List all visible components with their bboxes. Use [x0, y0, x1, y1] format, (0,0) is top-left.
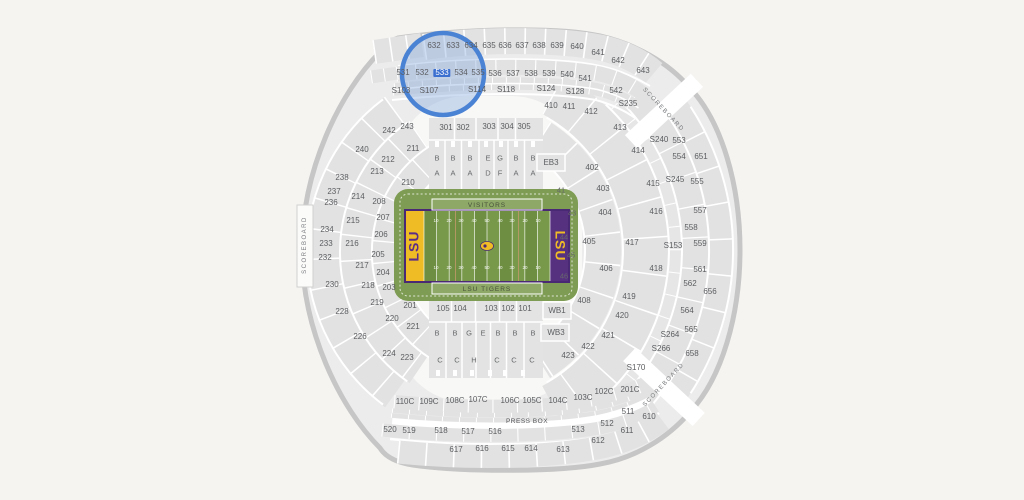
map-label-f: F: [498, 169, 503, 177]
map-label-640[interactable]: 640: [570, 43, 583, 51]
map-label-637[interactable]: 637: [515, 42, 528, 50]
map-label-555[interactable]: 555: [690, 178, 703, 186]
map-label-20: 20: [446, 266, 451, 271]
map-label-564[interactable]: 564: [680, 307, 693, 315]
map-label-408[interactable]: 408: [577, 297, 590, 305]
map-label-eb3[interactable]: EB3: [543, 159, 558, 167]
map-label-s264[interactable]: S264: [661, 331, 680, 339]
map-label-406[interactable]: 406: [599, 265, 612, 273]
map-label-538[interactable]: 538: [524, 70, 537, 78]
map-label-a: A: [434, 169, 439, 177]
map-label-s118[interactable]: S118: [497, 86, 515, 94]
map-label-217[interactable]: 217: [355, 262, 368, 270]
map-label-104[interactable]: 104: [453, 305, 466, 313]
map-label-228[interactable]: 228: [335, 308, 348, 316]
map-label-518[interactable]: 518: [434, 427, 447, 435]
map-label-50: 50: [484, 219, 489, 224]
map-label-205[interactable]: 205: [371, 251, 384, 259]
map-label-b: B: [513, 154, 518, 162]
map-label-226[interactable]: 226: [353, 333, 366, 341]
map-label-104c[interactable]: 104C: [548, 397, 567, 405]
map-label-b: B: [495, 329, 500, 337]
map-label-220[interactable]: 220: [385, 315, 398, 323]
map-label-204[interactable]: 204: [376, 269, 389, 277]
map-label-wb1[interactable]: WB1: [548, 307, 565, 315]
map-label-201c[interactable]: 201C: [620, 386, 639, 394]
map-label-40: 40: [471, 219, 476, 224]
map-label-218[interactable]: 218: [361, 282, 374, 290]
map-label-103c[interactable]: 103C: [573, 394, 592, 402]
map-label-s124[interactable]: S124: [537, 85, 556, 93]
map-label-208[interactable]: 208: [372, 198, 385, 206]
map-label-511[interactable]: 511: [622, 408, 635, 416]
map-label-g: G: [497, 154, 503, 162]
map-label-656[interactable]: 656: [703, 288, 716, 296]
map-label-20: 20: [522, 219, 527, 224]
map-label-206[interactable]: 206: [374, 231, 387, 239]
map-label-532[interactable]: 532: [415, 69, 428, 77]
map-label-554[interactable]: 554: [672, 153, 685, 161]
map-label-632[interactable]: 632: [427, 42, 440, 50]
map-label-520[interactable]: 520: [383, 426, 396, 434]
map-label-616[interactable]: 616: [475, 445, 488, 453]
map-label-531[interactable]: 531: [396, 69, 409, 77]
map-label-305[interactable]: 305: [517, 123, 530, 131]
map-label-102[interactable]: 102: [501, 305, 514, 313]
map-label-30: 30: [509, 219, 514, 224]
map-label-211[interactable]: 211: [407, 145, 420, 153]
map-label-404[interactable]: 404: [598, 209, 611, 217]
map-label-242[interactable]: 242: [382, 127, 395, 135]
map-label-s128[interactable]: S128: [566, 88, 585, 96]
map-label-651[interactable]: 651: [694, 153, 707, 161]
map-label-418[interactable]: 418: [649, 265, 662, 273]
map-label-541[interactable]: 541: [578, 75, 591, 83]
map-label-108c[interactable]: 108C: [445, 397, 464, 405]
map-label-636[interactable]: 636: [498, 42, 511, 50]
map-label-c: C: [494, 356, 499, 364]
map-label-210[interactable]: 210: [401, 179, 414, 187]
map-label-611[interactable]: 611: [621, 427, 634, 435]
map-label-46: 46: [560, 272, 568, 280]
map-label-a: A: [530, 169, 535, 177]
map-label-105[interactable]: 105: [436, 305, 449, 313]
map-label-658[interactable]: 658: [685, 350, 698, 358]
map-label-b: B: [467, 154, 472, 162]
map-label-223[interactable]: 223: [400, 354, 413, 362]
map-label-10: 10: [433, 219, 438, 224]
map-label-243[interactable]: 243: [400, 123, 413, 131]
map-label-534[interactable]: 534: [454, 69, 467, 77]
map-label-20: 20: [446, 219, 451, 224]
map-label-535[interactable]: 535: [471, 69, 484, 77]
map-label-s114[interactable]: S114: [468, 86, 486, 94]
map-label-403[interactable]: 403: [596, 185, 609, 193]
map-label-10: 10: [535, 219, 540, 224]
map-label-s266[interactable]: S266: [652, 345, 671, 353]
map-label-230[interactable]: 230: [325, 281, 338, 289]
map-label-50: 50: [484, 266, 489, 271]
map-label-639[interactable]: 639: [550, 42, 563, 50]
map-label-517[interactable]: 517: [461, 428, 474, 436]
map-label-419[interactable]: 419: [622, 293, 635, 301]
map-label-414[interactable]: 414: [631, 147, 644, 155]
map-label-c: C: [511, 356, 516, 364]
map-label-s170[interactable]: S170: [627, 364, 646, 372]
map-label-b: B: [434, 154, 439, 162]
map-label-106c[interactable]: 106C: [500, 397, 519, 405]
map-label-553[interactable]: 553: [672, 137, 685, 145]
map-label-d: D: [485, 169, 490, 177]
map-label-539[interactable]: 539: [542, 70, 555, 78]
map-label-238[interactable]: 238: [335, 174, 348, 182]
map-label-s240[interactable]: S240: [650, 136, 669, 144]
map-label-10: 10: [433, 266, 438, 271]
map-label-638[interactable]: 638: [532, 42, 545, 50]
map-label-wb3[interactable]: WB3: [547, 329, 564, 337]
map-label-e: E: [485, 154, 490, 162]
map-label-scoreboard: SCOREBOARD: [641, 87, 685, 133]
map-label-scoreboard: SCOREBOARD: [302, 216, 308, 274]
map-label-610[interactable]: 610: [642, 413, 655, 421]
map-label-b: B: [450, 154, 455, 162]
map-label-g: G: [466, 329, 472, 337]
map-label-e: E: [480, 329, 485, 337]
map-label-105c[interactable]: 105C: [522, 397, 541, 405]
map-label-b: B: [452, 329, 457, 337]
map-label-633[interactable]: 633: [446, 42, 459, 50]
map-label-219[interactable]: 219: [370, 299, 383, 307]
map-label-30: 30: [458, 219, 463, 224]
map-label-20: 20: [522, 266, 527, 271]
map-label-c: C: [437, 356, 442, 364]
map-label-635[interactable]: 635: [482, 42, 495, 50]
map-label-565[interactable]: 565: [684, 326, 697, 334]
map-label-s153[interactable]: S153: [664, 242, 683, 250]
map-label-413[interactable]: 413: [613, 124, 626, 132]
map-label-207[interactable]: 207: [376, 214, 389, 222]
map-label-40: 40: [471, 266, 476, 271]
map-label-410[interactable]: 410: [544, 102, 557, 110]
map-label-422[interactable]: 422: [581, 343, 594, 351]
map-label-613[interactable]: 613: [556, 446, 569, 454]
map-label-203[interactable]: 203: [382, 284, 395, 292]
map-label-634[interactable]: 634: [464, 42, 477, 50]
map-label-45: 45: [567, 251, 575, 259]
map-label-519[interactable]: 519: [402, 427, 415, 435]
map-label-415[interactable]: 415: [646, 180, 659, 188]
map-label-301[interactable]: 301: [439, 124, 452, 132]
map-label-641[interactable]: 641: [591, 49, 604, 57]
map-label-232[interactable]: 232: [318, 254, 331, 262]
map-label-233[interactable]: 233: [319, 240, 332, 248]
map-label-press-box: PRESS BOX: [506, 419, 548, 426]
map-label-405[interactable]: 405: [582, 238, 595, 246]
map-label-417[interactable]: 417: [625, 239, 638, 247]
map-label-614[interactable]: 614: [524, 445, 537, 453]
map-label-101[interactable]: 101: [518, 305, 531, 313]
map-label-303[interactable]: 303: [482, 123, 495, 131]
map-label-542[interactable]: 542: [609, 87, 622, 95]
map-label-304[interactable]: 304: [500, 123, 513, 131]
map-label-s245[interactable]: S245: [666, 176, 685, 184]
map-label-c: C: [529, 356, 534, 364]
map-label-10: 10: [535, 266, 540, 271]
map-label-103[interactable]: 103: [484, 305, 497, 313]
map-label-537[interactable]: 537: [506, 70, 519, 78]
map-label-540[interactable]: 540: [560, 71, 573, 79]
map-label-212[interactable]: 212: [381, 156, 394, 164]
map-label-402[interactable]: 402: [585, 164, 598, 172]
map-label-102c[interactable]: 102C: [594, 388, 613, 396]
map-label-234[interactable]: 234: [320, 226, 333, 234]
map-label-516[interactable]: 516: [488, 428, 501, 436]
map-label-536[interactable]: 536: [488, 70, 501, 78]
map-label-201[interactable]: 201: [403, 302, 416, 310]
map-label-c: C: [454, 356, 459, 364]
map-label-b: B: [530, 154, 535, 162]
map-label-30: 30: [509, 266, 514, 271]
map-label-302[interactable]: 302: [456, 124, 469, 132]
map-label-559[interactable]: 559: [693, 240, 706, 248]
map-label-240[interactable]: 240: [355, 146, 368, 154]
map-label-533[interactable]: 533: [433, 69, 450, 77]
map-label-scoreboard: SCOREBOARD: [642, 362, 686, 408]
label-layer: 6326336346356366376386396406416426435315…: [0, 0, 1024, 500]
map-label-214[interactable]: 214: [351, 193, 364, 201]
map-label-40: 40: [497, 266, 502, 271]
map-label-216[interactable]: 216: [345, 240, 358, 248]
map-label-615[interactable]: 615: [501, 445, 514, 453]
map-label-43: 43: [568, 209, 576, 217]
map-label-557[interactable]: 557: [693, 207, 706, 215]
map-label-558[interactable]: 558: [684, 224, 697, 232]
map-label-416[interactable]: 416: [649, 208, 662, 216]
map-label-41: 41: [557, 186, 565, 194]
map-label-412[interactable]: 412: [584, 108, 597, 116]
map-label-109c[interactable]: 109C: [419, 398, 438, 406]
map-label-411[interactable]: 411: [563, 103, 576, 111]
stadium-seating-map: VISITORS LSU TIGERS LSU LSU 632633634635…: [0, 0, 1024, 500]
map-label-215[interactable]: 215: [346, 217, 359, 225]
map-label-423[interactable]: 423: [561, 352, 574, 360]
map-label-h: H: [471, 356, 476, 364]
map-label-642[interactable]: 642: [611, 57, 624, 65]
map-label-a: A: [513, 169, 518, 177]
map-label-237[interactable]: 237: [327, 188, 340, 196]
map-label-b: B: [530, 329, 535, 337]
map-label-s235[interactable]: S235: [619, 100, 638, 108]
map-label-643[interactable]: 643: [636, 67, 649, 75]
map-label-513[interactable]: 513: [571, 426, 584, 434]
map-label-512[interactable]: 512: [600, 420, 613, 428]
map-label-562[interactable]: 562: [683, 280, 696, 288]
map-label-617[interactable]: 617: [449, 446, 462, 454]
map-label-612[interactable]: 612: [591, 437, 604, 445]
map-label-b: B: [512, 329, 517, 337]
map-label-213[interactable]: 213: [370, 168, 383, 176]
map-label-30: 30: [458, 266, 463, 271]
map-label-a: A: [467, 169, 472, 177]
map-label-44: 44: [560, 233, 568, 241]
map-label-221[interactable]: 221: [406, 323, 419, 331]
map-label-561[interactable]: 561: [693, 266, 706, 274]
map-label-s107[interactable]: S107: [420, 87, 439, 95]
map-label-224[interactable]: 224: [382, 350, 395, 358]
map-label-420[interactable]: 420: [615, 312, 628, 320]
map-label-40: 40: [497, 219, 502, 224]
map-label-236[interactable]: 236: [324, 199, 337, 207]
map-label-421[interactable]: 421: [601, 332, 614, 340]
map-label-b: B: [434, 329, 439, 337]
map-label-s103[interactable]: S103: [392, 87, 411, 95]
map-label-107c[interactable]: 107C: [468, 396, 487, 404]
map-label-110c[interactable]: 110C: [396, 398, 415, 406]
map-label-a: A: [450, 169, 455, 177]
